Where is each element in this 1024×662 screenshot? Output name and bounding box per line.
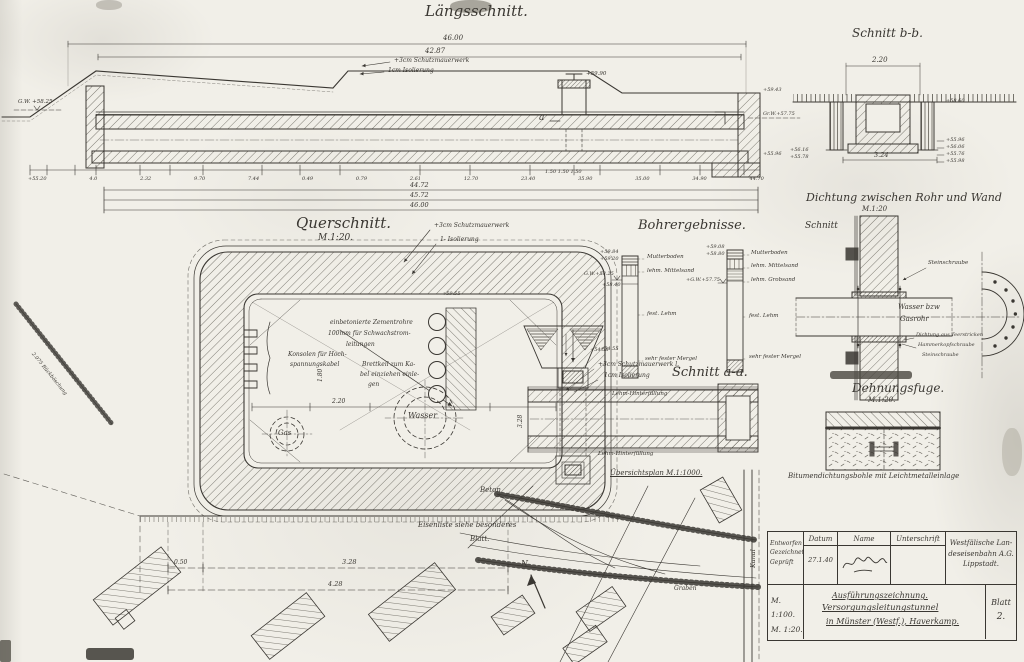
chain-value: 0.79 [356,176,367,182]
blatt-number: 2. [986,610,1016,624]
chain-value: 9.70 [194,176,205,182]
note-schutzmauerwerk-qs: +3cm Schutzmauerwerk [434,223,509,229]
bl-elev-1: +59.84 [600,250,619,255]
label-brettkeil-1: Brettkeil zum Ka- [362,362,415,368]
br-layer-0: Mutterboden [751,251,788,257]
section-title-querschnitt: Querschnitt. [296,216,391,232]
aa-note-iso: 1cm Isolierung [604,373,650,379]
row-label-geprueft: Geprüft [770,558,803,567]
qs-elev-top: +59.55 [442,292,461,297]
dichtung-scale: M.1:20 [862,206,887,213]
note-steinschraube-top: Steinschraube [928,261,968,267]
bb-elev-r1: +55.96 [946,138,965,143]
label-zementrohre-2: 100mm für Schwachstrom- [328,331,411,337]
row-label-entworfen: Entworfen [770,539,803,548]
br-elev-2: +58.80 [706,252,725,257]
column-name: Name [838,532,891,584]
pipe-label-2: Gasrohr [900,316,929,323]
chain-value: 35.00 [635,176,649,182]
bb-elev-r4: +55.98 [946,159,965,164]
column-header-name: Name [838,532,890,546]
chain-value: 0.49 [302,176,313,182]
dim-46-00-top: 46.00 [443,35,463,42]
br-layer-1: lehm. Mittelsand [751,264,798,270]
elev-right-bottom: +55.96 [763,152,782,157]
bl-elev-mid: +58.40 [602,283,621,288]
bb-elev-r3: +55.76 [946,152,965,157]
doc-title-line-1: Versorgungsleitungstunnel [822,602,985,615]
label-graben: Graben [674,586,697,592]
company-line-3: Lippstadt. [946,559,1016,570]
scan-smudge [1002,428,1022,476]
title-block-row-labels: Entworfen Gezeichnet Geprüft [768,532,804,584]
ink-blob [86,648,134,660]
qs-dim-328: 3.28 [342,559,356,566]
label-zementrohre-1: einbetonierte Zementrohre [330,320,413,326]
bb-elev-l0: +56.16 [790,148,809,153]
doc-type: Ausführungszeichnung. [832,590,985,602]
groundwater-label-left: G.W. +58.25 [18,100,53,106]
br-layer-2: lehm. Grobsand [751,278,795,284]
chain-value: 4.0 [89,176,97,182]
br-layer-4: sehr fester Mergel [749,355,801,361]
br-elev-1: +59.08 [706,245,725,250]
dim-44-72: 44.72 [410,182,429,189]
dim-46-00-bottom: 46.00 [410,202,429,209]
bl-layer-0: Mutterboden [647,255,684,261]
aa-lehm-top: Lehm-Hinterfüllung [612,392,667,398]
dehnungsfuge-caption: Bitumendichtungsbohle mit Leichtmetallei… [788,473,959,480]
elev-right-top: +59.43 [763,88,782,93]
column-unterschrift: Unterschrift [891,532,946,584]
qs-dim-inner-h: 1.80 [318,369,324,382]
crossed-out-text-smudge [830,371,912,379]
aa-lehm-bottom: Lehm-Hinterfüllung [598,452,653,458]
column-header-datum: Datum [804,532,837,546]
scan-smudge [96,0,122,10]
note-hammerkopfschraube: Hammerkopfschraube [918,343,975,348]
querschnitt-scale: M.1:20. [318,234,353,243]
elev-right-gw: Gr.W.+57.75 [763,112,795,117]
column-header-unterschrift: Unterschrift [891,532,945,546]
cross-section-drawing [140,230,620,594]
label-gas: Gas [278,430,291,437]
chain-value: +55.20 [28,176,47,182]
date-value: 27.1.40 [804,546,837,564]
pipe-label-1: Wasser bzw [898,304,940,311]
sub-dimension-chain: 1.50 1.50 1.50 [545,170,582,175]
label-wasser: Wasser [408,412,437,420]
section-title-laengsschnitt: Längsschnitt. [425,4,528,20]
qs-dim-428: 4.28 [328,581,342,588]
chain-value: 12.70 [464,176,478,182]
note-isolierung-qs: 1- Isolierung [440,237,479,243]
flange-bolts [993,280,1017,347]
chain-value: 35.90 [578,176,592,182]
section-title-aa: Schnitt a-a. [672,366,748,380]
title-block-top-row: Entworfen Gezeichnet Geprüft Datum 27.1.… [768,532,1016,585]
label-konsolen-1: Konsolen für Hoch- [288,352,347,358]
label-konsolen-2: spannungskabel [290,362,339,368]
scale-1-20: M. 1:20. [771,623,803,637]
section-bb-drawing [793,63,1016,163]
dim-45-72: 45.72 [410,192,429,199]
siteplan-title: Übersichtsplan M.1:1000. [610,470,702,477]
aa-note-wall: +3cm Schutzmauerwerk l. [598,362,679,368]
bl-layer-2: fest. Lehm [647,312,677,318]
note-teerstricke: Dichtung aus Teerstricken [916,333,983,338]
company-line-2: deseisenbahn A.G. [946,549,1016,560]
chain-value: 44.70 [750,176,764,182]
column-datum: Datum 27.1.40 [804,532,838,584]
drawing-sheet: Längsschnitt. 46.00 42.87 +3cm Schutzmau… [0,0,1024,662]
section-mark-a: a [539,114,544,123]
dehnungsfuge-scale: M.1:20. [868,397,895,404]
label-brettkeil-2: bel einziehen einle- [360,372,419,378]
scale-1-100: M. 1:100. [771,594,803,623]
chain-value: 23.40 [521,176,535,182]
shaft-elevation: +59.90 [586,72,606,78]
sheet-number-cell: Blatt 2. [986,585,1016,639]
blatt-label: Blatt [986,597,1016,610]
chain-value: 34.90 [692,176,706,182]
bl-gw: G.W.+58.25 [584,272,614,277]
note-steinschraube-bottom: Steinschraube [922,353,959,358]
scales-cell: M. 1:100. M. 1:20. [768,585,804,639]
dichtung-schnitt-label: Schnitt [805,222,838,231]
dim-42-87: 42.87 [425,48,445,55]
drawing-title-cell: Ausführungszeichnung. Versorgungsleitung… [804,585,986,639]
section-title-bb: Schnitt b-b. [852,27,923,40]
eisenliste-note-1: Eisenliste siehe besonderes [418,522,516,529]
row-label-gezeichnet: Gezeichnet [770,548,803,557]
chain-value: 2.32 [140,176,151,182]
note-schutzmauerwerk-long: +3cm Schutzmauerwerk [394,58,469,64]
company-cell: Westfälische Lan- deseisenbahn A.G. Lipp… [946,532,1016,584]
aa-dim-left: 3.28 [518,415,524,428]
note-isolierung-long: 1cm Isolierung [388,68,434,74]
qs-dim-050: 0.50 [174,560,187,566]
label-kanal: Kanal [750,549,757,568]
detail-title-dichtung: Dichtung zwischen Rohr und Wand [806,192,1002,204]
aa-elev: +54.55 [590,348,609,353]
qs-dim-inner-w: 2.20 [332,399,345,405]
chain-value: 7.44 [248,176,259,182]
label-north: N [521,560,528,568]
br-gw: +G.W.+57.75 [686,278,720,283]
label-zementrohre-3: leitungen [346,342,375,348]
eisenliste-note-2: Blatt. [470,536,489,543]
north-arrow [527,575,545,608]
bb-dim-324: 3.24 [874,152,888,159]
br-layer-3: fest. Lehm [749,314,779,320]
bb-elev-r0: +58.60 [946,99,965,104]
bl-elev-2: +59.20 [600,257,619,262]
detail-title-dehnungsfuge: Dehnungsfuge. [852,382,944,395]
bb-elev-r2: +56.06 [946,145,965,150]
bb-dim-220: 2.20 [872,57,888,64]
bl-layer-1: lehm. Mittelsand [647,269,694,275]
label-brettkeil-3: gen [368,382,379,388]
signature-scribble [840,552,890,576]
label-beton: Beton [480,487,501,494]
doc-title-line-2: in Münster (Westf.), Haverkamp. [826,616,985,628]
dimension-chain: +55.20 4.0 2.32 9.70 7.44 0.49 0.79 2.61… [28,176,764,182]
company-line-1: Westfälische Lan- [946,538,1016,549]
bb-elev-l1: +55.78 [790,155,809,160]
title-block-bottom-row: M. 1:100. M. 1:20. Ausführungszeichnung.… [768,585,1016,639]
expansion-joint-drawing [826,412,940,470]
title-block: Entworfen Gezeichnet Geprüft Datum 27.1.… [767,531,1017,641]
ink-blob [0,640,11,662]
section-title-bohrergebnisse: Bohrergebnisse. [638,219,746,233]
